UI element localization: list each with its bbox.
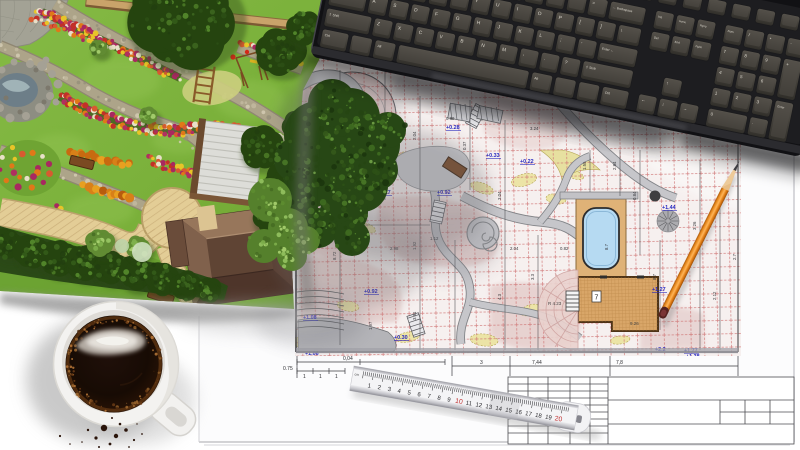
svg-text:10: 10 [455, 398, 464, 406]
svg-text:3: 3 [480, 360, 483, 366]
svg-text:3.3: 3.3 [530, 273, 535, 280]
svg-text:1: 1 [303, 374, 306, 380]
svg-text:9.26: 9.26 [630, 321, 639, 326]
svg-text:Alt: Alt [377, 44, 382, 49]
svg-text:1.55: 1.55 [582, 161, 587, 170]
svg-text:2.04: 2.04 [510, 246, 519, 251]
svg-text:1: 1 [335, 374, 338, 380]
svg-text:0.82: 0.82 [560, 246, 569, 251]
svg-text:4.3: 4.3 [497, 293, 502, 300]
svg-text:0.84: 0.84 [632, 191, 637, 200]
svg-text:7: 7 [595, 295, 599, 302]
svg-text:Alt: Alt [534, 76, 539, 81]
svg-text:3.61: 3.61 [412, 311, 417, 320]
svg-text:3.04: 3.04 [497, 191, 502, 200]
svg-text:0,04: 0,04 [343, 356, 353, 362]
svg-text:3.26: 3.26 [692, 221, 697, 230]
svg-text:cm: cm [354, 372, 359, 377]
svg-text:R 4.23: R 4.23 [548, 301, 562, 306]
svg-text:7,44: 7,44 [532, 360, 542, 366]
svg-text:8.7: 8.7 [604, 243, 609, 250]
svg-text:2.84: 2.84 [612, 161, 617, 170]
svg-text:2.12: 2.12 [712, 291, 717, 300]
svg-text:0.75: 0.75 [283, 366, 293, 372]
svg-text:8.7: 8.7 [652, 273, 657, 280]
svg-text:0.99: 0.99 [446, 116, 455, 121]
svg-text:1.97: 1.97 [368, 321, 373, 330]
svg-text:2.7: 2.7 [732, 253, 737, 260]
svg-text:1: 1 [319, 374, 322, 380]
svg-text:7,8: 7,8 [616, 360, 623, 366]
svg-text:→: → [682, 106, 688, 112]
svg-text:20: 20 [554, 415, 563, 423]
